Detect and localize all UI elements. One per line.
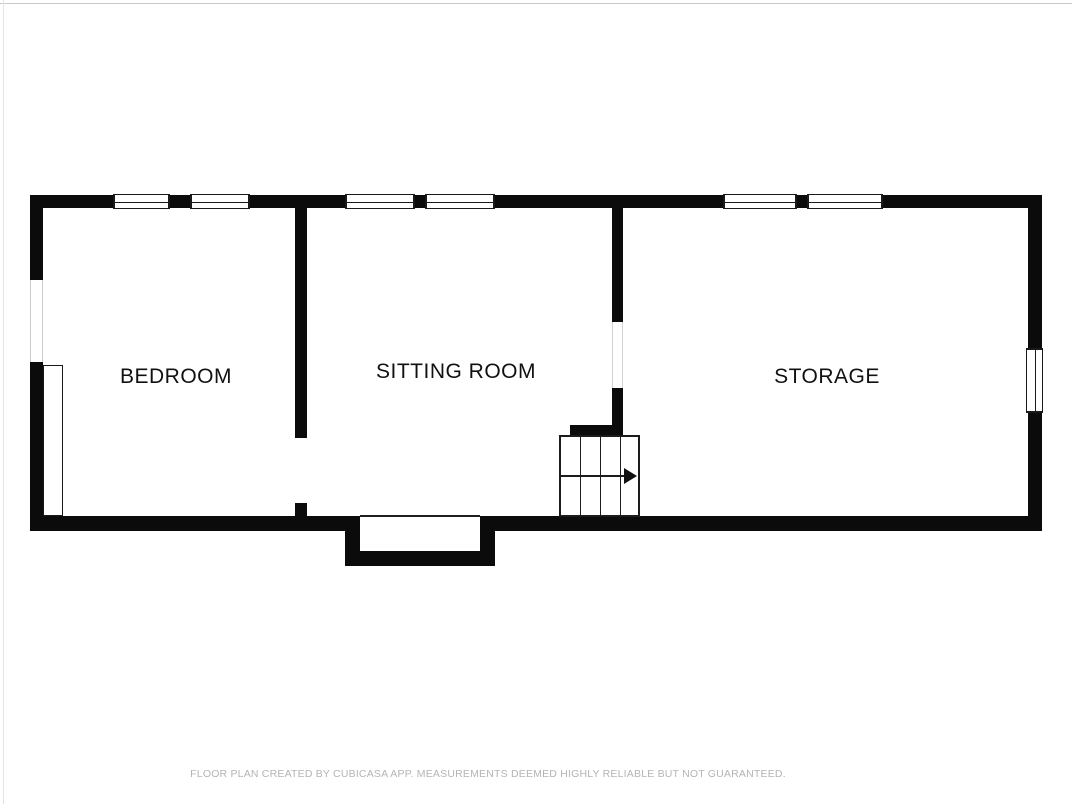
exterior-wall-right-upper [1028,195,1042,348]
stairs-arrow-icon [624,468,637,484]
window [113,194,170,209]
doorway-edge-line [612,322,613,388]
room-label-sitting-room: SITTING ROOM [376,360,536,384]
porch-wall-bottom [345,551,495,566]
window [807,194,883,209]
room-label-storage: STORAGE [774,365,880,389]
exterior-wall-bottom-right [480,516,1042,531]
doorway-edge-line [622,322,623,388]
stair-side-wall-stub [570,425,623,435]
window [345,194,415,209]
partition-wall-bedroom-sitting-upper [295,208,307,438]
window [425,194,495,209]
floor-plan-page: BEDROOM SITTING ROOM STORAGE FLOOR PLAN … [0,0,1072,804]
room-label-bedroom: BEDROOM [120,365,232,389]
exterior-wall-bottom-left [30,516,360,531]
stairs-arrow-line [561,475,626,477]
doorway-edge-line [30,280,31,362]
exterior-wall-right-lower [1028,413,1042,531]
window [723,194,797,209]
staircase [559,435,640,517]
page-edge-left [3,0,4,804]
partition-wall-sitting-storage-upper [612,208,623,322]
partition-wall-bedroom-sitting-lower [295,503,307,516]
exterior-wall-left-upper [30,195,43,280]
porch-threshold-line [360,515,480,517]
exterior-wall-top [30,195,1042,208]
disclaimer-text: FLOOR PLAN CREATED BY CUBICASA APP. MEAS… [190,768,786,780]
exterior-wall-left-lower [30,362,43,531]
doorway-edge-line [42,280,43,362]
window [1026,348,1043,413]
page-edge-top [0,3,1072,4]
window [190,194,250,209]
door-leaf [43,365,63,516]
